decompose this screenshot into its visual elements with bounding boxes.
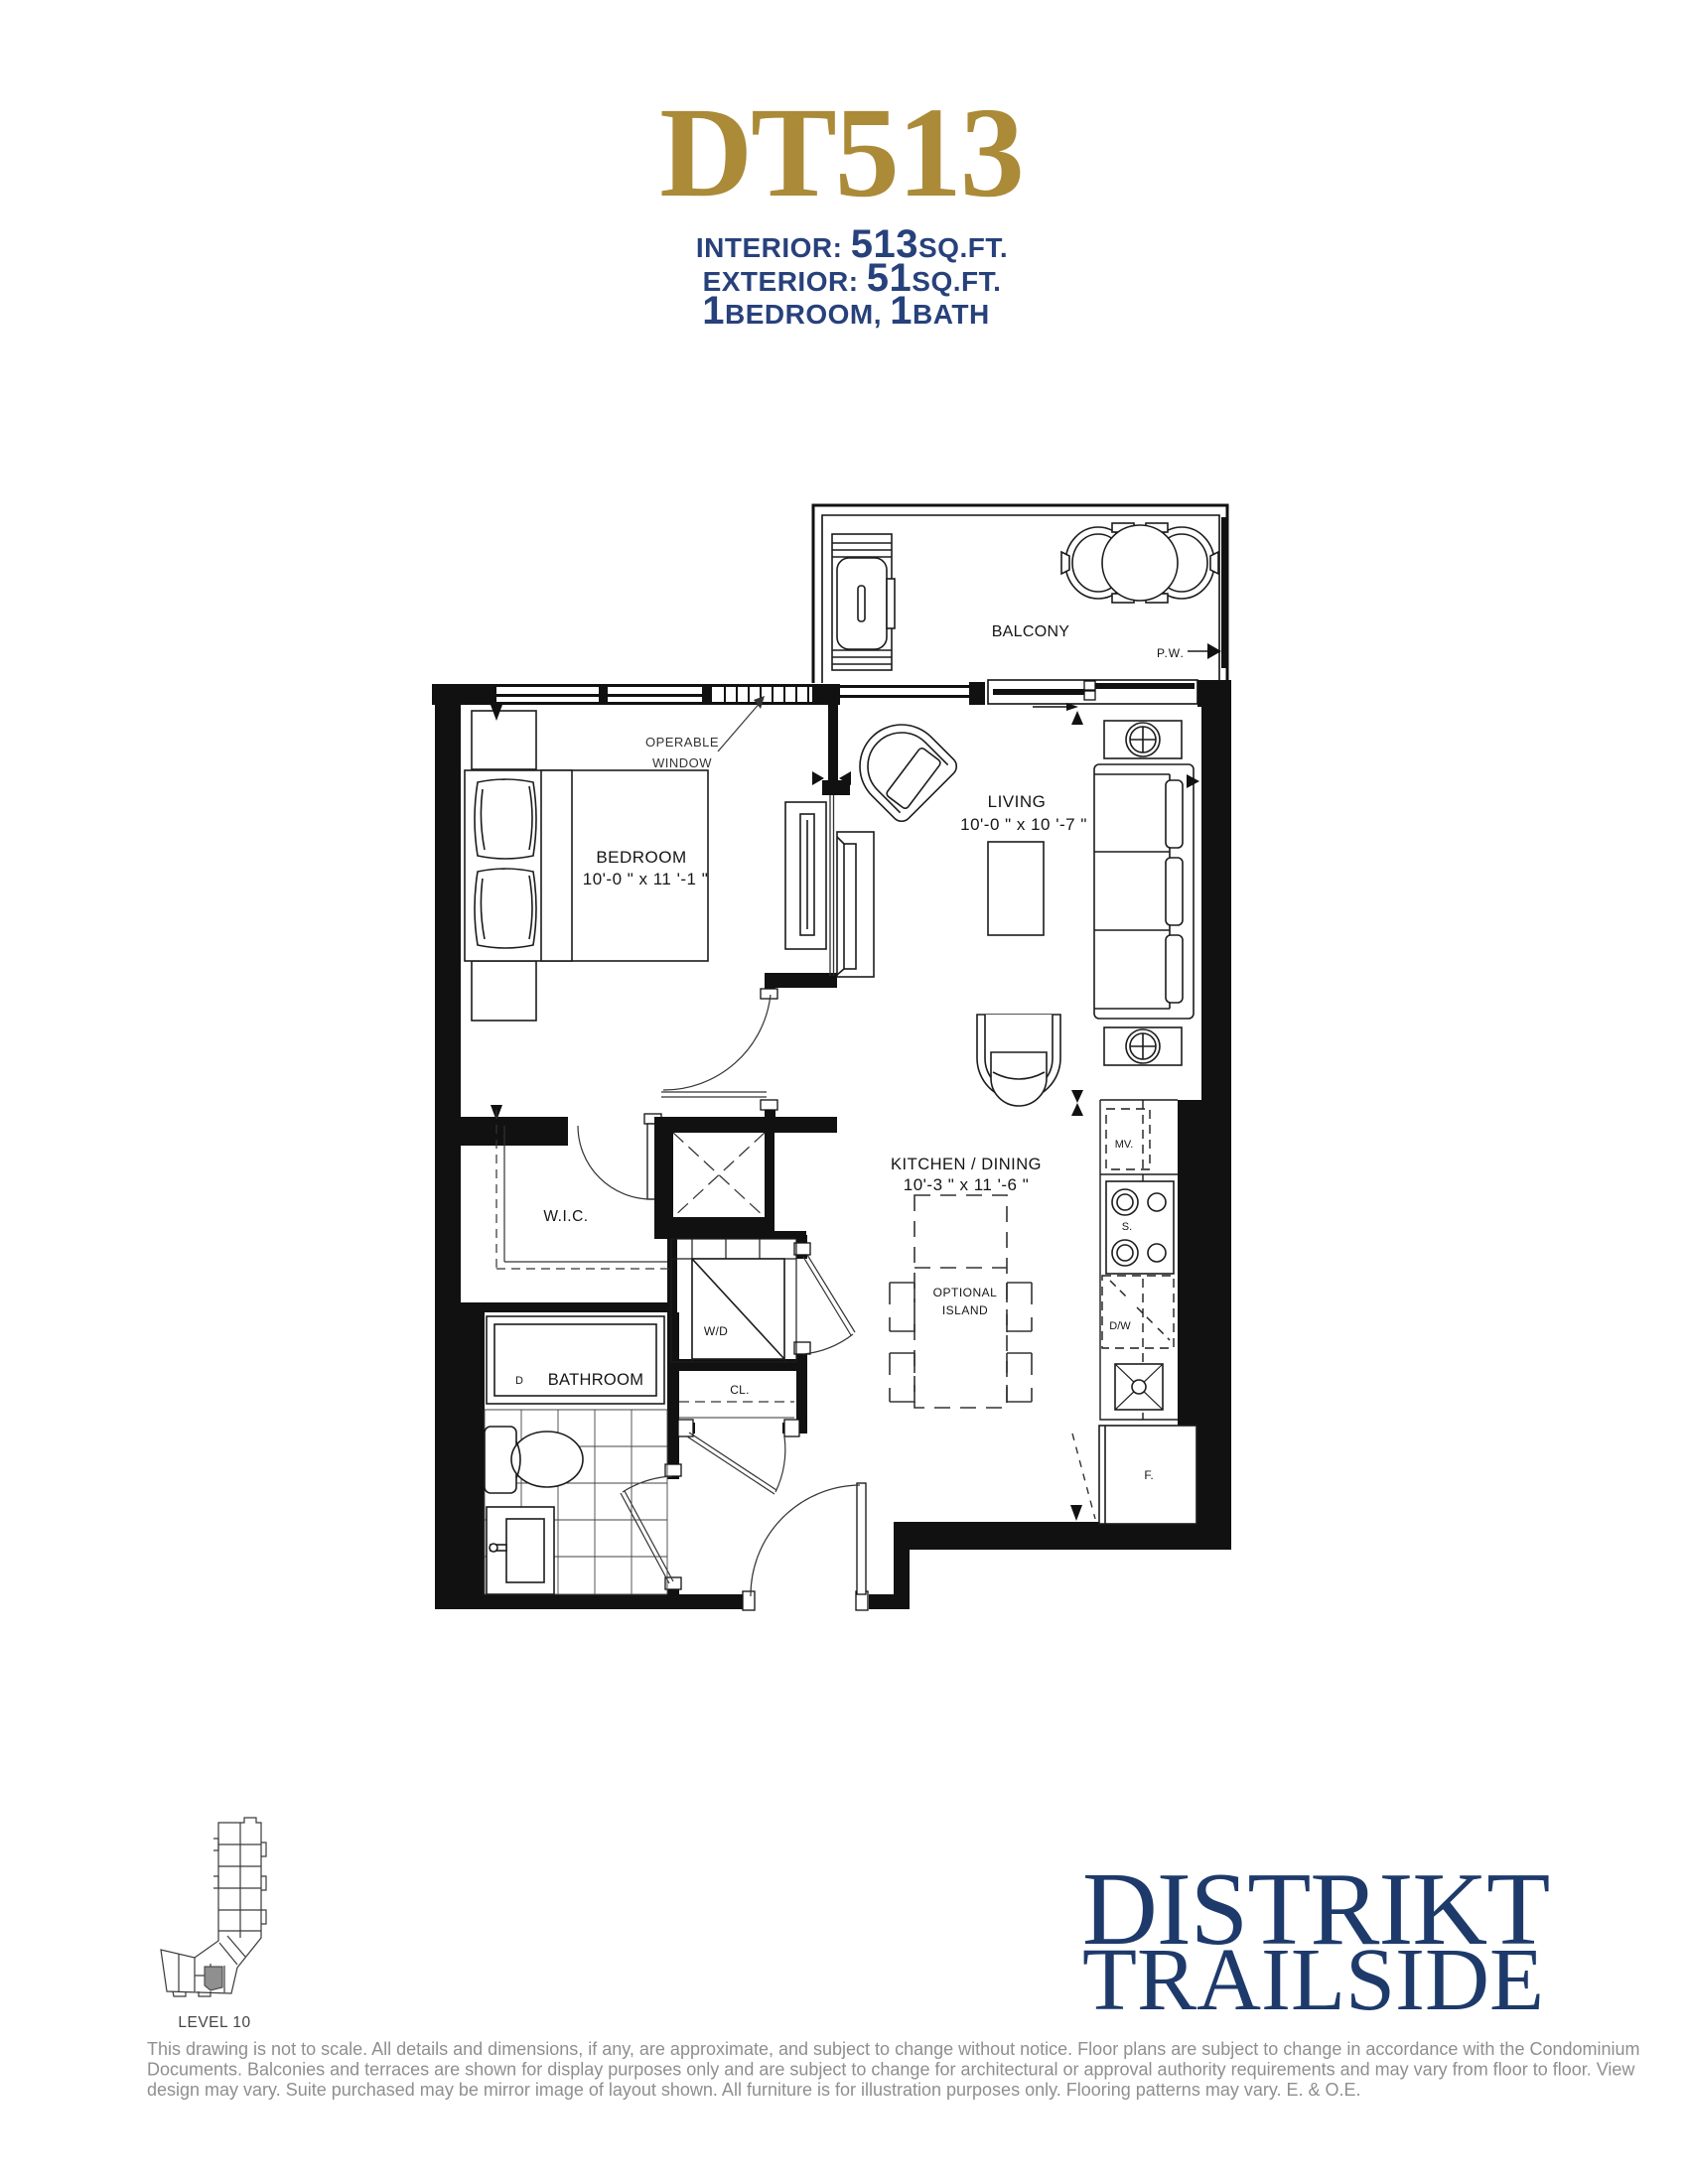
svg-text:TRAILSIDE: TRAILSIDE	[1082, 1931, 1544, 2029]
svg-text:CL.: CL.	[730, 1383, 750, 1397]
svg-text:DT513: DT513	[659, 81, 1023, 224]
svg-text:Documents. Balconies and terra: Documents. Balconies and terraces are sh…	[147, 2060, 1635, 2080]
svg-text:design may vary. Suite purcha: design may vary. Suite purchased may be …	[147, 2080, 1361, 2100]
svg-text:D: D	[515, 1375, 523, 1387]
svg-text:WINDOW: WINDOW	[652, 755, 712, 770]
svg-text:MV.: MV.	[1115, 1139, 1134, 1151]
svg-text:BATHROOM: BATHROOM	[548, 1371, 644, 1389]
svg-text:OPTIONAL: OPTIONAL	[933, 1286, 998, 1299]
svg-text:LIVING: LIVING	[988, 792, 1047, 811]
svg-text:LEVEL 10: LEVEL 10	[178, 2014, 250, 2031]
svg-text:P.W.: P.W.	[1157, 646, 1185, 660]
svg-text:ISLAND: ISLAND	[942, 1303, 988, 1317]
svg-text:KITCHEN / DINING: KITCHEN / DINING	[891, 1156, 1042, 1173]
svg-text:W.I.C.: W.I.C.	[543, 1208, 588, 1225]
svg-text:D/W: D/W	[1109, 1320, 1131, 1332]
svg-text:BALCONY: BALCONY	[992, 623, 1070, 640]
svg-text:W/D: W/D	[704, 1324, 728, 1338]
svg-text:This drawing is not to scale.: This drawing is not to scale. All detail…	[147, 2039, 1640, 2059]
svg-text:S.: S.	[1122, 1221, 1132, 1233]
svg-text:OPERABLE: OPERABLE	[645, 735, 719, 750]
svg-text:10'-3 " x 11 '-6 ": 10'-3 " x 11 '-6 "	[904, 1175, 1029, 1194]
svg-text:10'-0 " x 11 '-1 ": 10'-0 " x 11 '-1 "	[583, 870, 708, 888]
svg-text:INTERIOR: 513SQ.FT.: INTERIOR: 513SQ.FT.	[696, 222, 1008, 266]
svg-text:BEDROOM: BEDROOM	[596, 848, 686, 867]
svg-text:F.: F.	[1144, 1468, 1153, 1482]
svg-text:10'-0 " x 10 '-7 ": 10'-0 " x 10 '-7 "	[960, 815, 1087, 834]
